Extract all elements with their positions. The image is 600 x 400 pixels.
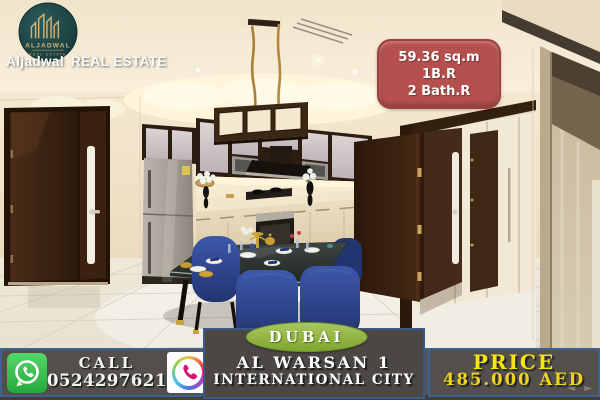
whatsapp-icon[interactable] bbox=[7, 353, 47, 393]
open-door-leaves bbox=[354, 128, 462, 315]
info-band: CALL 0524297621 DUBAI AL WARSAN 1 bbox=[0, 348, 600, 400]
phone-number: 0524297621 bbox=[47, 372, 167, 389]
brand-logo-icon: ALJADWAL REAL ESTATE bbox=[18, 2, 78, 62]
handset-icon bbox=[179, 363, 198, 382]
city-badge: DUBAI bbox=[246, 322, 368, 352]
company-name: AljadwalREAL ESTATE bbox=[6, 54, 164, 69]
real-estate-flyer: ALJADWAL REAL ESTATE AljadwalREAL ESTATE… bbox=[0, 0, 600, 400]
location-box: DUBAI AL WARSAN 1 INTERNATIONAL CITY bbox=[203, 328, 425, 399]
phone-icon-ring bbox=[172, 356, 206, 390]
city-name: DUBAI bbox=[269, 329, 345, 346]
price-label: PRICE bbox=[430, 352, 598, 372]
entrance-door bbox=[4, 106, 110, 286]
spec-bedrooms: 1B.R bbox=[379, 67, 499, 82]
spec-bathrooms: 2 Bath.R bbox=[379, 84, 499, 99]
location-line1: AL WARSAN 1 bbox=[205, 353, 423, 372]
brand-logo: ALJADWAL REAL ESTATE AljadwalREAL ESTATE bbox=[4, 0, 164, 76]
spec-area: 59.36 sq.m bbox=[379, 50, 499, 65]
watermark-arrows: ◄ ► bbox=[567, 384, 595, 394]
contact-box: CALL 0524297621 bbox=[0, 348, 202, 397]
price-box: PRICE 485.000 AED ◄ ► bbox=[428, 348, 600, 397]
logo-circle-text: ALJADWAL bbox=[25, 43, 71, 50]
location-line2: INTERNATIONAL CITY bbox=[205, 372, 423, 389]
call-label: CALL bbox=[47, 356, 167, 372]
property-specs-badge: 59.36 sq.m 1B.R 2 Bath.R bbox=[377, 39, 501, 109]
